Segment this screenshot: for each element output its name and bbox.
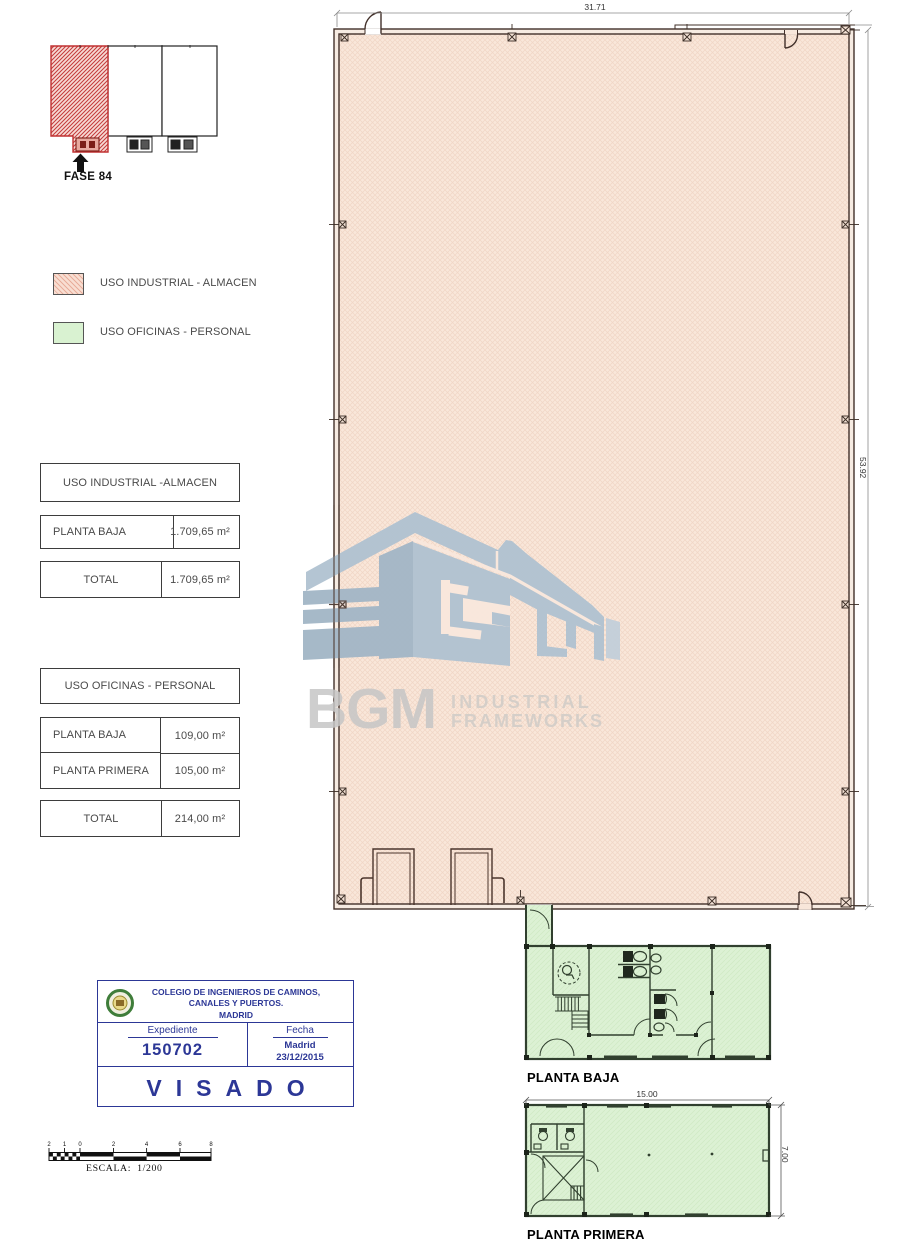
svg-text:0: 0 xyxy=(78,1142,82,1148)
svg-text:1: 1 xyxy=(63,1142,67,1148)
svg-text:2: 2 xyxy=(112,1142,116,1148)
svg-text:4: 4 xyxy=(145,1142,149,1148)
svg-text:6: 6 xyxy=(178,1142,182,1148)
svg-text:2: 2 xyxy=(47,1142,51,1148)
svg-text:8: 8 xyxy=(209,1142,213,1148)
